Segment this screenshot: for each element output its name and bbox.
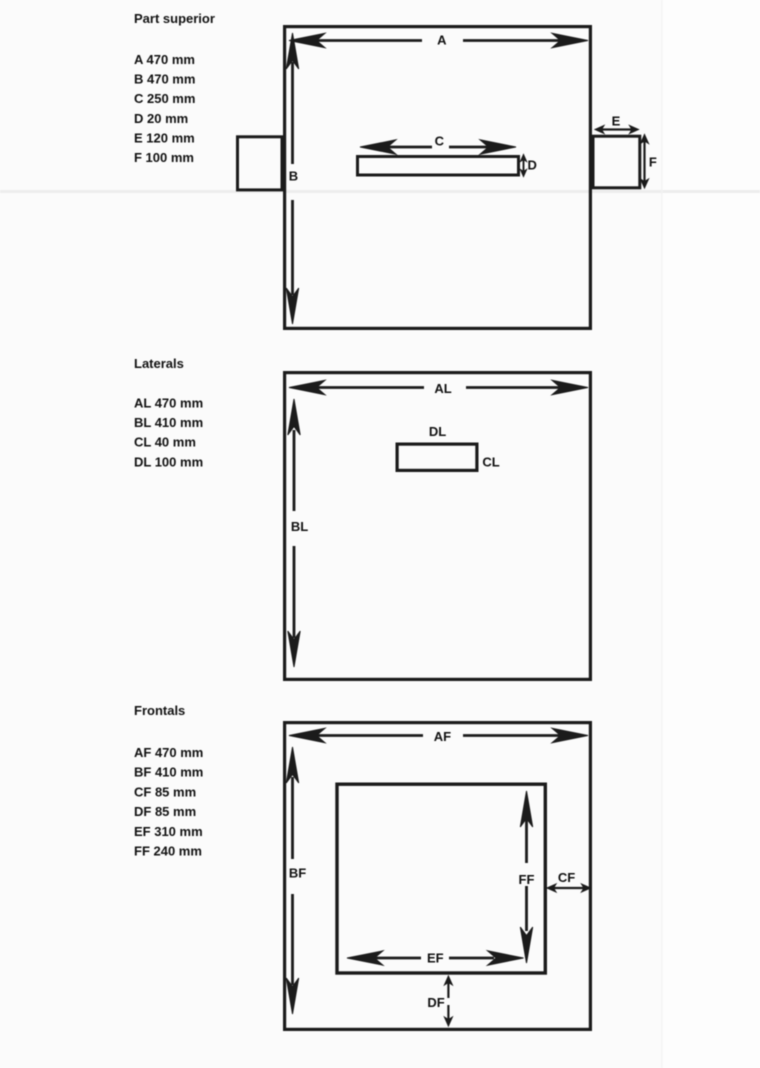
svg-text:AL: AL — [434, 381, 451, 396]
svg-text:AL 470 mm: AL 470 mm — [134, 396, 203, 411]
svg-text:B: B — [289, 168, 298, 183]
svg-text:E 120 mm: E 120 mm — [134, 130, 195, 145]
svg-text:BL 410 mm: BL 410 mm — [134, 415, 203, 430]
svg-text:C: C — [435, 133, 445, 148]
svg-text:DF 85 mm: DF 85 mm — [134, 804, 196, 819]
svg-text:CL 40 mm: CL 40 mm — [134, 435, 196, 450]
svg-text:FF: FF — [519, 872, 535, 887]
svg-text:BL: BL — [291, 519, 308, 534]
svg-text:CL: CL — [482, 455, 499, 470]
svg-text:BF: BF — [289, 866, 306, 881]
svg-text:CF: CF — [558, 870, 575, 885]
svg-text:FF 240 mm: FF 240 mm — [134, 844, 202, 859]
svg-text:D 20 mm: D 20 mm — [134, 111, 188, 126]
svg-text:EF 310 mm: EF 310 mm — [134, 824, 203, 839]
svg-text:AF: AF — [434, 729, 451, 744]
svg-text:B 470 mm: B 470 mm — [134, 72, 195, 87]
svg-text:DL: DL — [429, 424, 446, 439]
svg-text:A: A — [437, 33, 447, 48]
svg-text:A 470 mm: A 470 mm — [134, 52, 195, 67]
svg-text:BF 410 mm: BF 410 mm — [134, 765, 203, 780]
svg-text:C 250 mm: C 250 mm — [134, 91, 195, 106]
svg-text:AF 470 mm: AF 470 mm — [134, 745, 203, 760]
svg-text:D: D — [528, 157, 537, 172]
svg-text:DF: DF — [427, 995, 444, 1010]
svg-text:DL 100 mm: DL 100 mm — [134, 454, 203, 469]
svg-text:Laterals: Laterals — [134, 356, 184, 371]
svg-text:F: F — [649, 155, 657, 170]
svg-text:F 100 mm: F 100 mm — [134, 150, 194, 165]
svg-text:E: E — [612, 114, 621, 129]
svg-text:Frontals: Frontals — [134, 703, 185, 718]
svg-text:EF: EF — [427, 951, 444, 966]
svg-text:CF 85 mm: CF 85 mm — [134, 784, 196, 799]
svg-text:Part superior: Part superior — [134, 11, 215, 26]
